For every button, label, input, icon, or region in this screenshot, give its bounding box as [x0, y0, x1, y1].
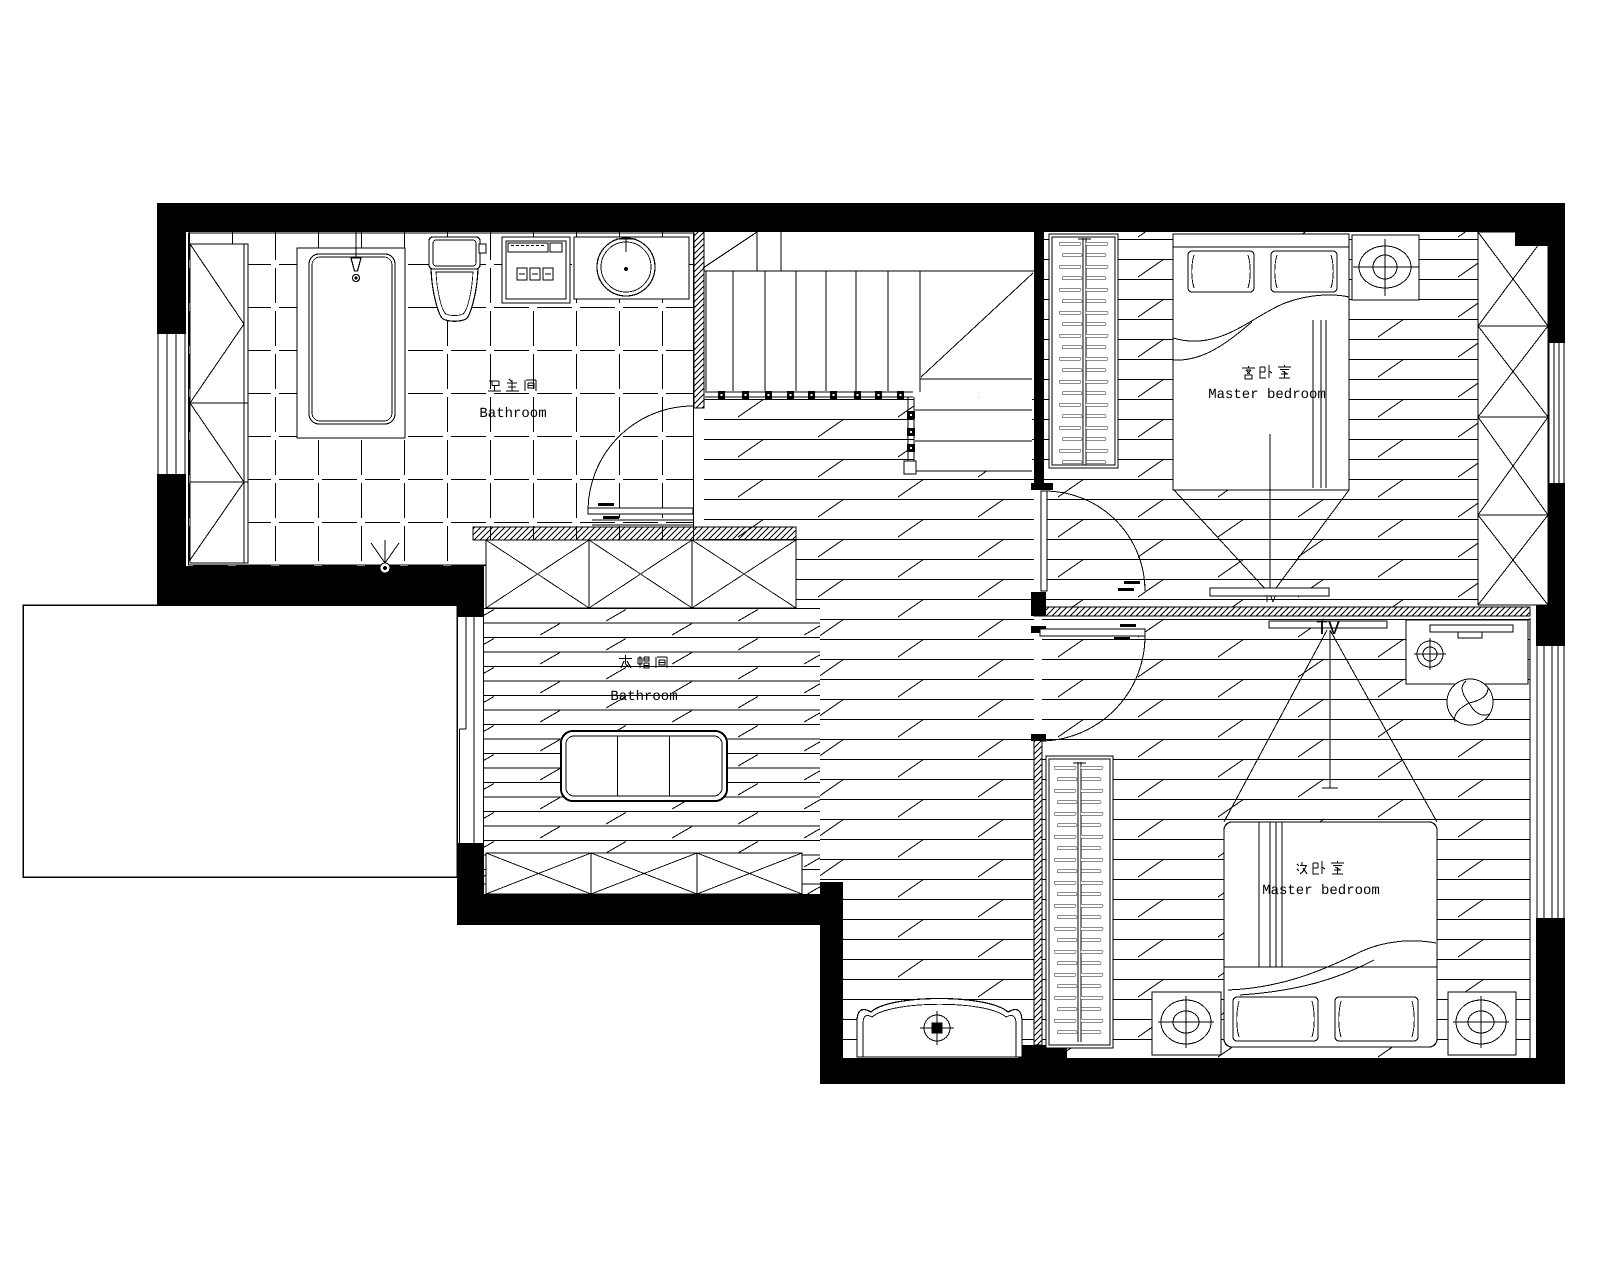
svg-text:Bathroom: Bathroom: [610, 689, 677, 705]
svg-text:Bathroom: Bathroom: [479, 406, 546, 422]
svg-text:TV: TV: [1316, 618, 1340, 641]
svg-text:Master bedroom: Master bedroom: [1208, 387, 1326, 403]
svg-text:TV: TV: [1264, 595, 1276, 606]
svg-text:Master bedroom: Master bedroom: [1262, 883, 1380, 899]
